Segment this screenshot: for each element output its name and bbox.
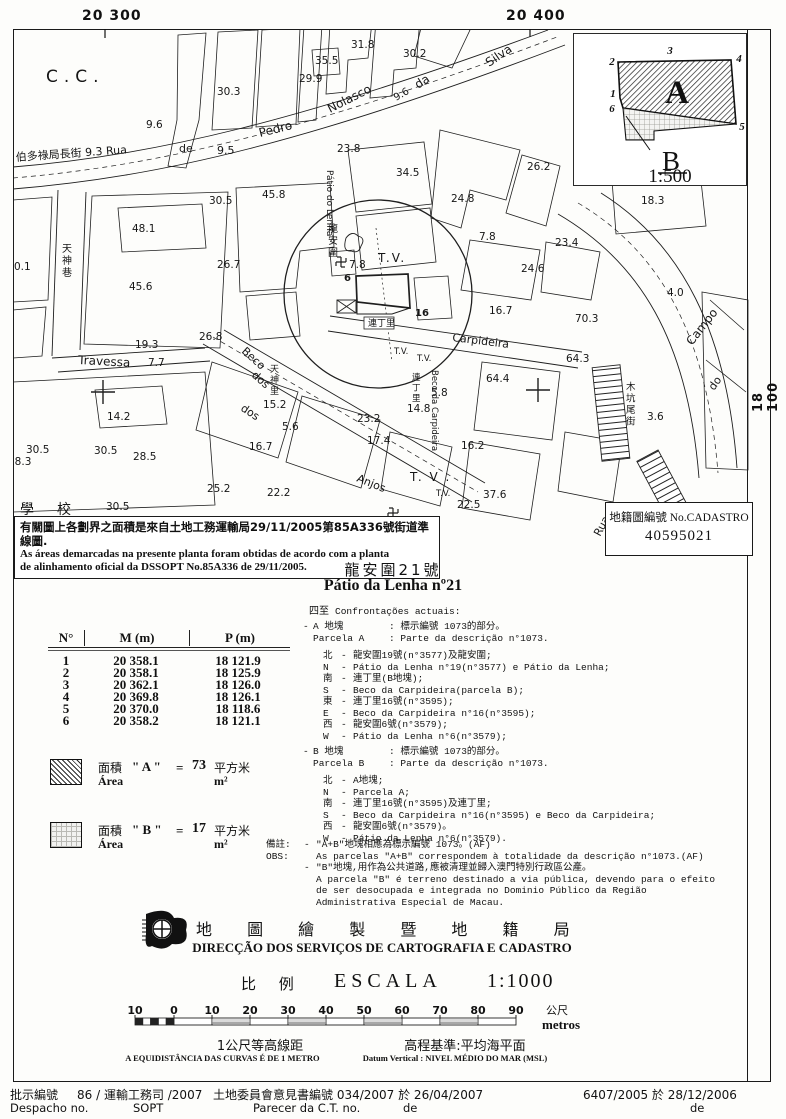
inset-corner-6: 6 xyxy=(609,103,615,115)
map-label: 木坑尾街 xyxy=(626,381,636,428)
map-label: 17.4 xyxy=(367,435,391,447)
map-label: 23.2 xyxy=(357,413,380,425)
scale-bar-fill xyxy=(364,1019,402,1024)
agency-name-pt: DIRECÇÃO DOS SERVIÇOS DE CARTOGRAFIA E C… xyxy=(146,940,618,956)
area-b-value: 17 xyxy=(192,821,206,837)
area-a-pt: Área xyxy=(98,774,123,789)
inset-corner-3: 3 xyxy=(666,45,673,57)
map-label: 34.5 xyxy=(396,167,419,179)
map-label: 天神巷 xyxy=(62,244,72,279)
agency-name-zh: 地 圖 繪 製 暨 地 籍 局 xyxy=(196,916,568,940)
table-header-rule xyxy=(48,647,290,651)
confrontacoes-heading: 四至Confrontações actuais: xyxy=(309,602,460,618)
grid-coordinate-top-right: 20 400 xyxy=(506,8,566,24)
map-label: 16.7 xyxy=(249,441,272,453)
map-label: 28.5 xyxy=(133,451,156,463)
coordinates-table: N° M (m) P (m) 120 358.118 121.9220 358.… xyxy=(48,630,290,727)
map-label: T.V. xyxy=(435,489,450,499)
plan-title-pt: Pátio da Lenha nº21 xyxy=(0,577,786,595)
scale-bar-unit-pt: metros xyxy=(542,1017,580,1032)
datum-note-pt: Datum Vertical : NIVEL MÉDIO DO MAR (MSL… xyxy=(345,1053,565,1063)
cadastro-number: 40595021 xyxy=(606,528,752,545)
area-b-pt: Área xyxy=(98,837,123,852)
map-label: dos xyxy=(238,402,262,424)
cadastro-label: 地籍圖編號 No.CADASTRO xyxy=(606,509,752,525)
coordinates-table-header: N° M (m) P (m) xyxy=(48,630,290,646)
parcel-side-line: 北-龍安圍19號(n°3577)及龍安圍; xyxy=(311,650,753,662)
map-label: 16 xyxy=(415,308,429,319)
remarks-block: 備註:-"A+B"地塊相應為標示編號 1073。(AF)OBS:As parce… xyxy=(266,839,766,908)
area-a-unit-pt: m² xyxy=(214,774,228,789)
table-cell: 18 121.1 xyxy=(188,715,288,727)
map-label: 45.6 xyxy=(129,281,153,293)
remark-line: OBS:As parcelas "A+B" correspondem à tot… xyxy=(266,851,766,863)
map-label: Pedro xyxy=(257,118,293,140)
area-b-eq: = xyxy=(176,823,183,839)
area-a-eq: = xyxy=(176,760,183,776)
map-label: 7.8 xyxy=(479,231,496,243)
map-label: 26.7 xyxy=(217,259,240,271)
footer-parecer-pt: Parecer da C.T. no. xyxy=(253,1101,360,1115)
map-label: 30.5 xyxy=(94,445,117,457)
map-label: 26.2 xyxy=(527,161,550,173)
parcel-side-line: N-Parcela A; xyxy=(311,787,753,799)
map-label: 5.6 xyxy=(282,421,299,433)
map-label: 連丁里 xyxy=(412,372,421,404)
scale-bar: 100102030405060708090公尺metros xyxy=(122,1002,592,1034)
parcel-header-line: -A 地塊: 標示編號 1073的部分。 xyxy=(303,621,753,633)
area-b-name: " B " xyxy=(132,822,162,838)
inset-scale: 1:500 xyxy=(648,166,691,185)
remark-line: Administrativa Especial de Macau. xyxy=(266,897,766,909)
map-label: T.V. xyxy=(393,347,408,357)
parcel-side-line: N-Pátio da Lenha n°19(n°3577) e Pátio da… xyxy=(311,662,753,674)
dot-swatch-b-icon xyxy=(50,822,82,848)
map-label: Beco xyxy=(239,345,268,373)
map-label: 9.6 xyxy=(146,119,163,131)
remark-line: de ser desocupada e integrada no Dominio… xyxy=(266,885,766,897)
inset-corner-2: 2 xyxy=(608,56,615,68)
map-label: 30.2 xyxy=(403,48,426,60)
map-label: 7.8 xyxy=(349,259,366,271)
cadastral-plan-sheet: 20 300 20 400 18 100 xyxy=(0,0,786,1119)
remark-line: -"B"地塊,用作為公共道路,應被清理並歸入澳門特別行政區公產。 xyxy=(266,862,766,874)
parcel-side-line: 北-A地塊; xyxy=(311,775,753,787)
inset-corner-4: 4 xyxy=(735,53,742,65)
map-label: C.C. xyxy=(46,67,105,87)
remark-line: 備註:-"A+B"地塊相應為標示編號 1073。(AF) xyxy=(266,839,766,851)
map-label: 25.2 xyxy=(207,483,230,495)
parcel-side-line: E-Beco da Carpideira n°16(n°3595); xyxy=(311,708,753,720)
map-label: Travessa xyxy=(77,353,131,370)
cross-symbol xyxy=(91,380,115,404)
parcel-side-line: 西-龍安圍6號(n°3579)。 xyxy=(311,821,753,833)
confrontacoes-heading-zh: 四至 xyxy=(309,607,329,618)
map-label: 龍安圍 xyxy=(328,222,338,259)
parcel-side-line: S-Beco da Carpideira(parcela B); xyxy=(311,685,753,697)
scale-label-zh: 比 例 xyxy=(241,973,303,994)
scale-bar-segment xyxy=(250,1018,288,1025)
scale-bar-segment xyxy=(326,1018,364,1025)
parcel-side-line: 東-連丁里16號(n°3595); xyxy=(311,696,753,708)
parcel-confrontation-block: -A 地塊: 標示編號 1073的部分。Parcela A: Parte da … xyxy=(303,621,753,742)
area-legend-a: 面積 " A " = 73 平方米 Área m² xyxy=(50,757,310,791)
map-label: 64.3 xyxy=(566,353,589,365)
map-label: 0.1 xyxy=(14,261,31,273)
map-label: 30.5 xyxy=(209,195,232,207)
map-label: 30.5 xyxy=(106,501,129,513)
scale-bar-fill xyxy=(288,1019,326,1024)
parcel-inset-diagram: 2 3 4 5 1 6 A B 1:500 xyxy=(574,34,746,185)
map-label: 9.5 xyxy=(217,144,235,157)
map-label: da xyxy=(412,72,432,92)
map-label: 4.0 xyxy=(667,287,684,299)
map-label: 連丁里 xyxy=(368,317,395,329)
map-label: 15.2 xyxy=(263,399,286,411)
scale-bar-block xyxy=(135,1018,143,1025)
map-label: 45.8 xyxy=(262,189,285,201)
map-label: Beco da Carpideira xyxy=(429,370,439,451)
map-label: 19.3 xyxy=(135,339,158,351)
parcel-side-line: 西-龍安圍6號(n°3579); xyxy=(311,719,753,731)
map-label: 3.6 xyxy=(647,411,664,423)
map-label: 16.2 xyxy=(461,440,484,452)
inset-corner-5: 5 xyxy=(739,121,745,133)
note-line-zh: 有關圖上各劃界之面積是來自土地工務運輸局29/11/2005第85A336號街道… xyxy=(20,520,434,548)
map-label: 23.8 xyxy=(337,143,360,155)
parcel-header-line: Parcela A: Parte da descrição n°1073. xyxy=(303,633,753,645)
area-a-name: " A " xyxy=(132,759,161,775)
col-header-p: P (m) xyxy=(190,630,290,646)
map-label: 天神里 xyxy=(270,365,279,397)
footer-parecer-de: de xyxy=(403,1101,417,1115)
map-label: 18.3 xyxy=(13,456,31,468)
parcel-side-line: S-Beco da Carpideira n°16(n°3595) e Beco… xyxy=(311,810,753,822)
area-a-value: 73 xyxy=(192,758,206,774)
map-label: Carpideira xyxy=(452,331,510,351)
map-label: 70.3 xyxy=(575,313,598,325)
scale-bar-block xyxy=(151,1018,159,1025)
map-label: do xyxy=(706,374,725,393)
crossed-box xyxy=(337,300,356,313)
footer-despacho-dept: SOPT xyxy=(133,1101,163,1115)
map-label: 16.7 xyxy=(489,305,512,317)
confrontacoes-heading-pt: Confrontações actuais: xyxy=(335,606,460,617)
map-label: 29.9 xyxy=(299,73,322,85)
scale-bar-segment xyxy=(478,1018,516,1025)
scale-bar-segment xyxy=(402,1018,440,1025)
table-row: 620 358.218 121.1 xyxy=(48,715,290,727)
cadastro-number-box: 地籍圖編號 No.CADASTRO 40595021 xyxy=(605,502,753,556)
scale-bar-fill xyxy=(212,1019,250,1024)
coordinates-table-body: 120 358.118 121.9220 358.118 125.9320 36… xyxy=(48,655,290,727)
cross-symbol xyxy=(526,378,550,402)
hatch-swatch-a-icon xyxy=(50,759,82,785)
grid-ticks xyxy=(105,29,530,38)
area-b-unit-pt: m² xyxy=(214,837,228,852)
map-label: 23.4 xyxy=(555,237,579,249)
map-label: 24.6 xyxy=(521,263,545,275)
map-label: T.V. xyxy=(416,354,431,364)
col-header-m: M (m) xyxy=(85,630,190,646)
map-label: 18.3 xyxy=(641,195,664,207)
remark-line: A parcela "B" é terreno destinado a via … xyxy=(266,874,766,886)
map-label: de xyxy=(179,142,193,155)
map-label: 22.2 xyxy=(267,487,290,499)
stairs-symbol xyxy=(592,365,687,516)
map-label: 22.5 xyxy=(457,499,480,511)
table-cell: 20 358.2 xyxy=(84,715,188,727)
grid-coordinate-top-left: 20 300 xyxy=(82,8,142,24)
scale-bar-block xyxy=(158,1018,166,1025)
scale-bar-block xyxy=(166,1018,174,1025)
map-label: 31.8 xyxy=(351,39,374,51)
map-label: 30.3 xyxy=(217,86,240,98)
map-label: 30.5 xyxy=(26,444,49,456)
scale-ratio: 1:1000 xyxy=(487,970,555,993)
parcel-side-line: 南-連丁里(B地塊); xyxy=(311,673,753,685)
footer-ref2-de: de xyxy=(690,1101,704,1115)
map-label: dos xyxy=(249,369,272,392)
datum-note-zh: 高程基準:平均海平面 xyxy=(360,1035,570,1054)
table-cell: 6 xyxy=(48,715,84,727)
scale-label-pt: ESCALA xyxy=(334,970,442,993)
parcel-highlight-circle xyxy=(284,200,472,388)
grid-coordinate-right: 18 100 xyxy=(751,377,781,412)
parcel-b-dotted xyxy=(357,302,410,314)
map-label: 37.6 xyxy=(483,489,507,501)
map-label: 24.8 xyxy=(451,193,474,205)
map-label: 26.8 xyxy=(199,331,222,343)
parcel-side-line: W-Pátio da Lenha n°6(n°3579); xyxy=(311,731,753,743)
parcel-header-line: -B 地塊: 標示編號 1073的部分。 xyxy=(303,746,753,758)
map-label: 35.5 xyxy=(315,55,338,67)
map-label: 64.4 xyxy=(486,373,510,385)
contour-note-zh: 1公尺等高線距 xyxy=(150,1035,370,1054)
scale-bar-fill xyxy=(440,1019,478,1024)
footer-despacho-pt: Despacho no. xyxy=(10,1101,88,1115)
parcel-confrontation-block: -B 地塊: 標示編號 1073的部分。Parcela B: Parte da … xyxy=(303,746,753,844)
scale-bar-block xyxy=(143,1018,151,1025)
scale-bar-unit-zh: 公尺 xyxy=(546,1004,568,1017)
map-label: 6 xyxy=(344,273,351,284)
inset-label-a: A xyxy=(665,75,689,111)
map-label: 48.1 xyxy=(132,223,155,235)
col-header-n: N° xyxy=(48,630,85,646)
map-label: 14.8 xyxy=(407,403,430,415)
footer-ref2: 6407/2005 於 28/12/2006 xyxy=(583,1086,737,1103)
parcel-header-line: Parcela B: Parte da descrição n°1073. xyxy=(303,758,753,770)
contour-note-pt: A EQUIDISTÂNCIA DAS CURVAS É DE 1 METRO xyxy=(100,1053,345,1063)
inset-corner-1: 1 xyxy=(610,88,616,100)
map-label: T.V. xyxy=(377,251,406,265)
scale-bar-segment xyxy=(174,1018,212,1025)
parcel-inset-box: 2 3 4 5 1 6 A B 1:500 xyxy=(573,33,747,186)
map-symbols xyxy=(91,257,550,518)
map-label: T. V . xyxy=(409,470,451,484)
map-label: 14.2 xyxy=(107,411,130,423)
parcel-side-line: 南-連丁里16號(n°3595)及連丁里; xyxy=(311,798,753,810)
map-label: Nolasco xyxy=(325,82,373,116)
map-label: 7.7 xyxy=(148,357,165,369)
